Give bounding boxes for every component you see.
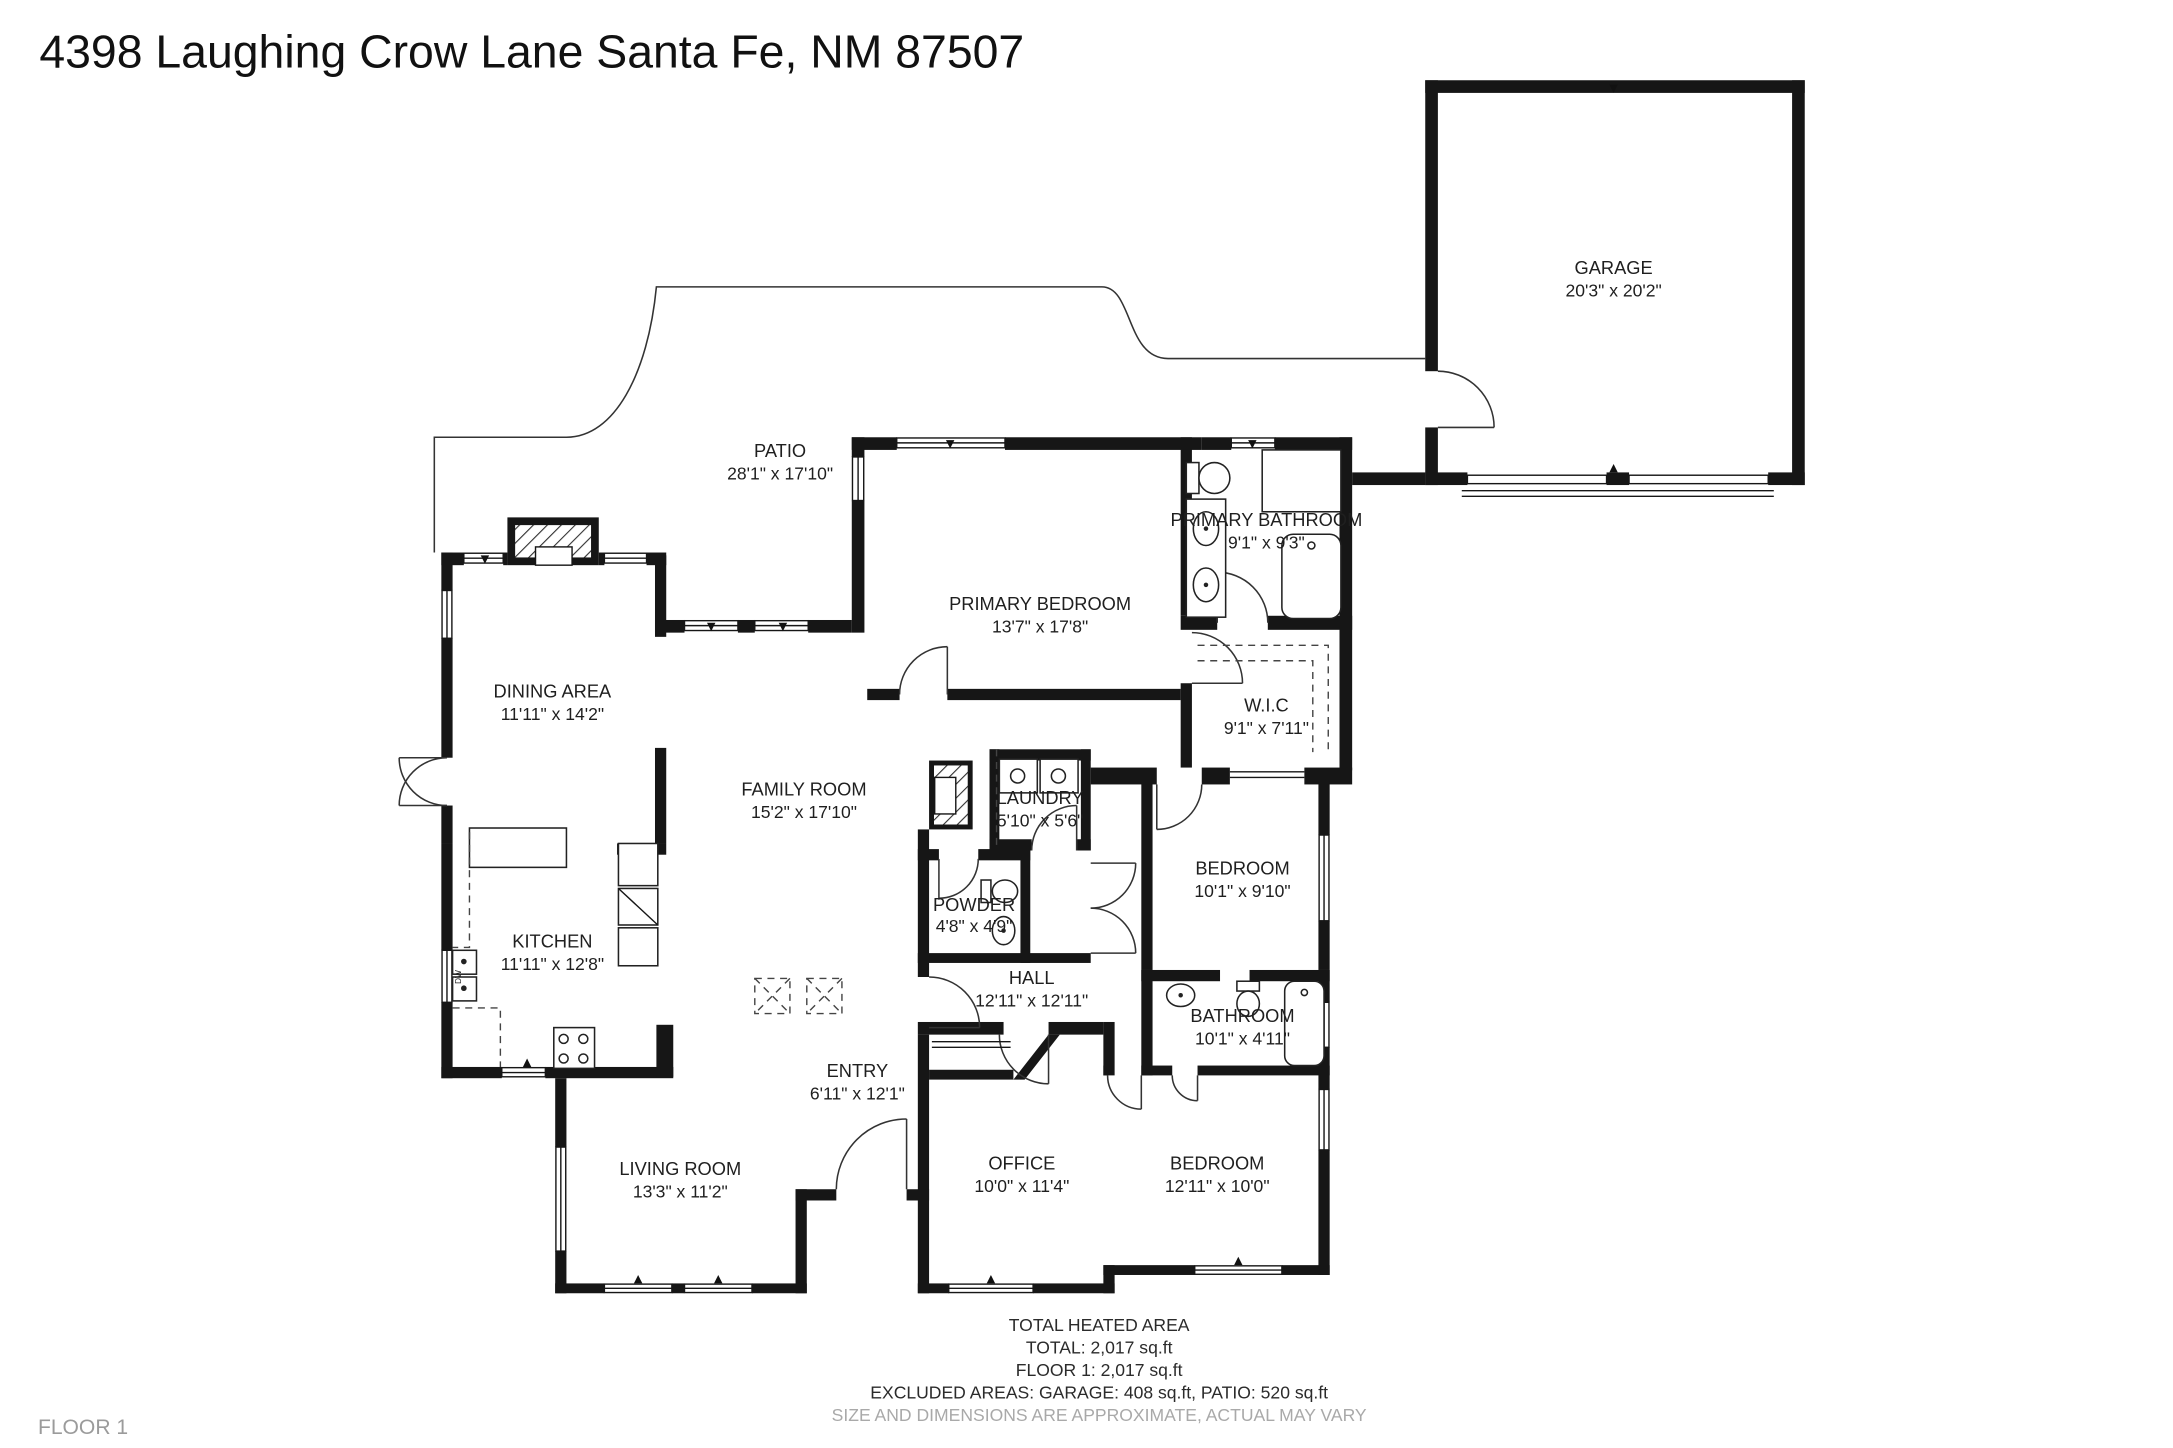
room-label-family: FAMILY ROOM [741, 779, 866, 800]
floor-plan-svg: 4398 Laughing Crow Lane Santa Fe, NM 875… [0, 0, 2173, 1448]
room-label-office: OFFICE [988, 1153, 1055, 1174]
dishwasher-label: DW [453, 970, 463, 984]
room-dims-office: 10'0" x 11'4" [974, 1176, 1069, 1196]
room-dims-powder: 4'8" x 4'9" [936, 916, 1013, 936]
summary-disclaimer: SIZE AND DIMENSIONS ARE APPROXIMATE, ACT… [832, 1405, 1367, 1425]
room-label-entry: ENTRY [827, 1060, 889, 1081]
wall-ticks [481, 84, 1618, 1283]
patio-boundary-lines [434, 287, 1774, 553]
room-label-hall: HALL [1009, 967, 1055, 988]
room-label-bedroom-ne: BEDROOM [1195, 857, 1289, 878]
room-dims-patio: 28'1" x 17'10" [727, 463, 833, 483]
room-label-powder: POWDER [933, 894, 1015, 915]
room-dims-family: 15'2" x 17'10" [751, 802, 857, 822]
room-label-garage: GARAGE [1575, 257, 1653, 278]
room-dims-primary-bathroom: 9'1" x 9'3" [1228, 532, 1305, 552]
room-dims-wic: 9'1" x 7'11" [1224, 718, 1309, 738]
room-labels: PATIO 28'1" x 17'10" GARAGE 20'3" x 20'2… [453, 257, 1662, 1201]
room-dims-bathroom: 10'1" x 4'11" [1195, 1028, 1290, 1048]
room-dims-hall: 12'11" x 12'11" [975, 991, 1088, 1011]
room-label-bathroom: BATHROOM [1190, 1005, 1294, 1026]
room-label-laundry: LAUNDRY [997, 787, 1084, 808]
room-label-dining: DINING AREA [494, 680, 613, 701]
room-dims-bedroom-ne: 10'1" x 9'10" [1194, 881, 1290, 901]
summary-total: TOTAL: 2,017 sq.ft [1026, 1338, 1173, 1358]
room-dims-laundry: 5'10" x 5'6" [997, 811, 1083, 831]
room-dims-dining: 11'11" x 14'2" [501, 704, 604, 724]
room-dims-garage: 20'3" x 20'2" [1565, 281, 1661, 301]
summary-excluded: EXCLUDED AREAS: GARAGE: 408 sq.ft, PATIO… [870, 1383, 1328, 1403]
chimney [929, 761, 973, 830]
floor-label: FLOOR 1 [38, 1416, 128, 1439]
room-label-wic: W.I.C [1244, 694, 1289, 715]
floor-plan-page: 4398 Laughing Crow Lane Santa Fe, NM 875… [0, 0, 2173, 1448]
room-dims-entry: 6'11" x 12'1" [810, 1083, 905, 1103]
room-dims-bedroom-se: 12'11" x 10'0" [1165, 1176, 1270, 1196]
room-label-patio: PATIO [754, 440, 806, 461]
fireplace [507, 517, 598, 565]
room-label-bedroom-se: BEDROOM [1170, 1153, 1264, 1174]
room-dims-living: 13'3" x 11'2" [633, 1182, 728, 1202]
summary-heading: TOTAL HEATED AREA [1009, 1315, 1190, 1335]
room-dims-primary-bedroom: 13'7" x 17'8" [992, 617, 1088, 637]
room-label-primary-bedroom: PRIMARY BEDROOM [949, 593, 1131, 614]
room-label-kitchen: KITCHEN [512, 930, 592, 951]
summary-floor1: FLOOR 1: 2,017 sq.ft [1016, 1360, 1183, 1380]
area-summary: TOTAL HEATED AREA TOTAL: 2,017 sq.ft FLO… [832, 1315, 1367, 1425]
room-label-living: LIVING ROOM [619, 1158, 741, 1179]
page-title: 4398 Laughing Crow Lane Santa Fe, NM 875… [39, 26, 1024, 78]
room-dims-kitchen: 11'11" x 12'8" [501, 954, 604, 974]
room-label-primary-bathroom: PRIMARY BATHROOM [1170, 509, 1362, 530]
